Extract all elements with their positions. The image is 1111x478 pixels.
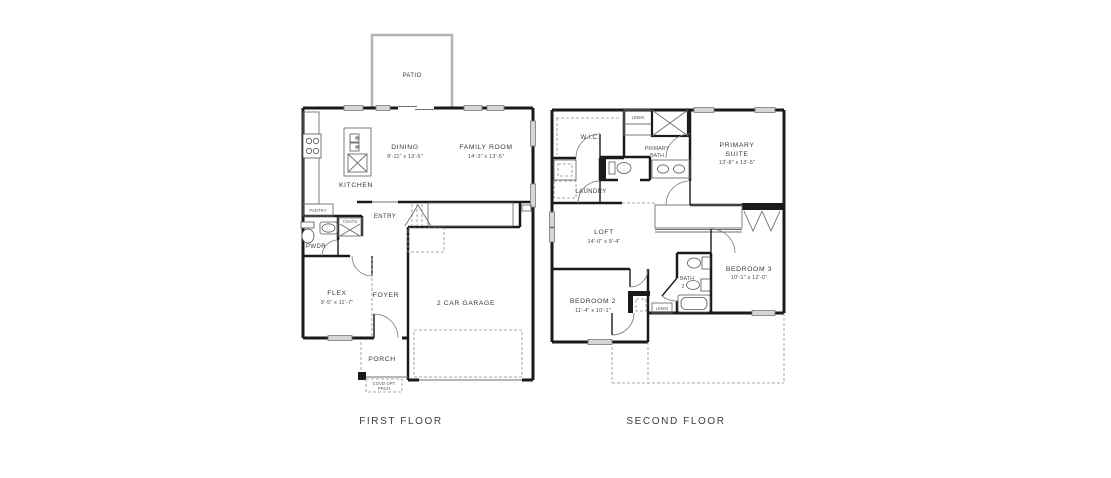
coats-label: COATS <box>343 219 358 224</box>
bath2-door <box>662 278 677 301</box>
laundry-label: LAUNDRY <box>575 189 606 195</box>
primary-bath-door <box>666 134 690 158</box>
bedroom2-closet <box>628 291 650 313</box>
sink-icon <box>320 222 337 234</box>
family-room-label: FAMILY ROOM <box>459 144 512 151</box>
loft-dims: 14'-0" x 9'-4" <box>588 239 621 245</box>
toilet-icon <box>609 162 631 174</box>
kitchen-island <box>344 128 371 176</box>
loft-label: LOFT <box>594 229 614 236</box>
double-vanity <box>652 160 690 178</box>
second-floor-plan: W.I.C. LINEN PRIMARY BATH PRIMARY SUITE … <box>550 108 785 428</box>
bathtub-icon <box>678 295 710 312</box>
flex-label: FLEX <box>327 290 346 297</box>
bedroom3-dims: 10'-1" x 12'-0" <box>731 275 767 281</box>
floorplan-drawing: PATIO DINING 9'-11" x 13'-5" FAMILY ROOM… <box>0 0 1111 478</box>
foyer-label: FOYER <box>373 292 399 299</box>
washer-dryer <box>554 160 576 198</box>
garage-door-zone <box>414 330 522 377</box>
linen-closet-upper <box>624 110 652 135</box>
toilet-room-wall <box>600 158 606 180</box>
bedroom2-door <box>630 269 648 287</box>
first-floor-title: FIRST FLOOR <box>359 416 443 427</box>
first-floor-plan: PATIO DINING 9'-11" x 13'-5" FAMILY ROOM… <box>301 35 536 427</box>
primary-suite-dims: 13'-8" x 13'-5" <box>719 160 755 166</box>
flex-dims: 9'-5" x 11'-7" <box>321 300 354 306</box>
pwdr-label: PWDR <box>306 244 326 250</box>
stair-header-wall <box>742 203 784 210</box>
bath2-label-line2: 2 <box>682 284 685 290</box>
toilet-icon <box>688 257 711 269</box>
primary-bath-label-line2: BATH <box>650 153 664 159</box>
linen-upper-label: LINEN <box>632 115 645 120</box>
bedroom3-label: BEDROOM 3 <box>726 266 772 273</box>
bath2-label-line1: BATH <box>680 276 694 282</box>
floorplan-canvas: PATIO DINING 9'-11" x 13'-5" FAMILY ROOM… <box>0 0 1111 478</box>
front-door <box>374 314 398 338</box>
bedroom3-closet-doors <box>744 211 780 231</box>
kitchen-label: KITCHEN <box>339 182 373 189</box>
shower-icon <box>652 110 688 136</box>
pantry-label: PANTRY <box>309 208 326 213</box>
wic-label: W.I.C. <box>581 135 600 141</box>
utility-box <box>522 205 531 211</box>
primary-suite-label-line1: PRIMARY <box>719 142 754 149</box>
porch-note-line2: PRCH <box>378 386 390 391</box>
linen-lower-label: LINEN <box>656 306 669 311</box>
porch-post <box>358 372 366 380</box>
bedroom3-door <box>711 229 735 253</box>
dining-dims: 9'-11" x 13'-5" <box>387 154 423 160</box>
primary-suite-label-line2: SUITE <box>725 151 748 158</box>
bedroom2-label: BEDROOM 2 <box>570 298 616 305</box>
kitchen-counter <box>303 112 321 204</box>
porch-label: PORCH <box>368 356 396 363</box>
garage-label: 2 CAR GARAGE <box>437 300 495 307</box>
second-floor-title: SECOND FLOOR <box>626 416 725 427</box>
patio-label: PATIO <box>402 73 421 79</box>
entry-label: ENTRY <box>374 214 396 220</box>
stairs-down <box>655 205 742 232</box>
flex-door <box>352 256 372 276</box>
family-room-dims: 14'-3" x 13'-5" <box>468 154 504 160</box>
dining-label: DINING <box>391 144 418 151</box>
bedroom2-dims: 11'-4" x 10'-1" <box>575 308 611 314</box>
bedroom2-closet-door <box>612 313 634 335</box>
patio-outline <box>372 35 452 107</box>
lower-floor-outline <box>612 313 784 383</box>
toilet-icon <box>301 222 314 243</box>
primary-suite-door <box>666 181 690 205</box>
primary-bath-label-line1: PRIMARY <box>645 146 670 152</box>
